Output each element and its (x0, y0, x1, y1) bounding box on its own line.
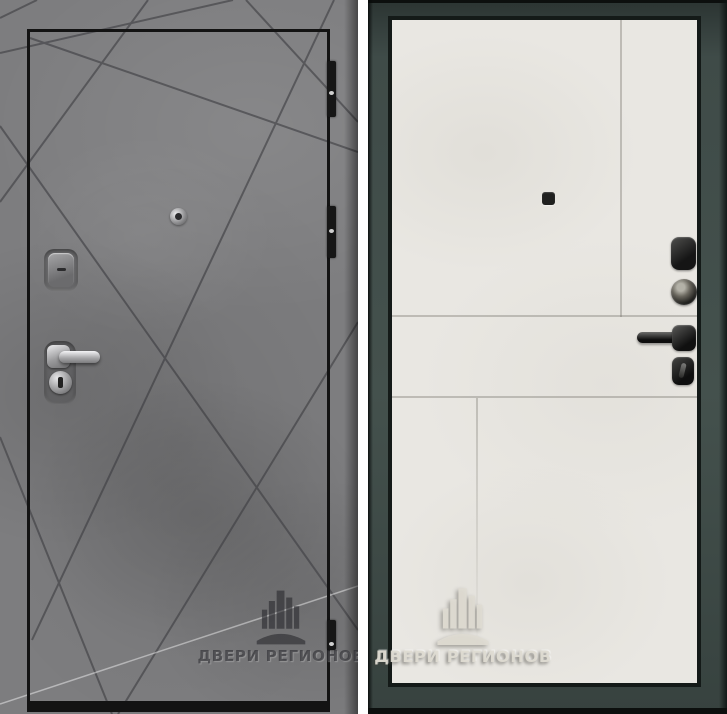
frame-edge-bottom (368, 708, 727, 714)
hinge-pin (329, 229, 334, 233)
thumb-turn-knob (678, 363, 686, 379)
panel-seam-horizontal (392, 315, 697, 317)
lock-cylinder (671, 279, 697, 305)
panel-seam-vertical (476, 398, 478, 648)
door-hinge-middle (327, 206, 336, 258)
keyhole-cover (44, 249, 78, 291)
keyhole-cover-face (48, 253, 74, 287)
hinge-pin (329, 642, 334, 646)
night-latch (671, 237, 696, 270)
door-leaf-panel (388, 16, 701, 687)
hinge-pin (329, 91, 334, 95)
lever-handle (59, 351, 100, 363)
panel-seam-horizontal (392, 396, 697, 398)
lock-cylinder (49, 371, 72, 394)
door-product-photo: ДВЕРИ РЕГИОНОВ (0, 0, 727, 714)
peephole (170, 208, 187, 225)
door-interior-view: ДВЕРИ РЕГИОНОВ (368, 0, 727, 714)
keyhole-slot (57, 268, 66, 271)
frame-edge-top (368, 0, 727, 3)
door-hinge-bottom (327, 620, 336, 650)
panel-seam-vertical (620, 20, 622, 317)
frame-edge-left (368, 0, 373, 714)
peephole (542, 192, 555, 205)
handle-rose (672, 325, 696, 351)
frame-edge-right (719, 0, 727, 714)
peephole-lens (175, 213, 182, 220)
jamb-shadow (344, 0, 358, 714)
keyhole (58, 377, 63, 388)
door-hinge-top (327, 61, 336, 117)
thumb-turn-lock (672, 357, 694, 385)
door-exterior-view: ДВЕРИ РЕГИОНОВ (0, 0, 358, 714)
